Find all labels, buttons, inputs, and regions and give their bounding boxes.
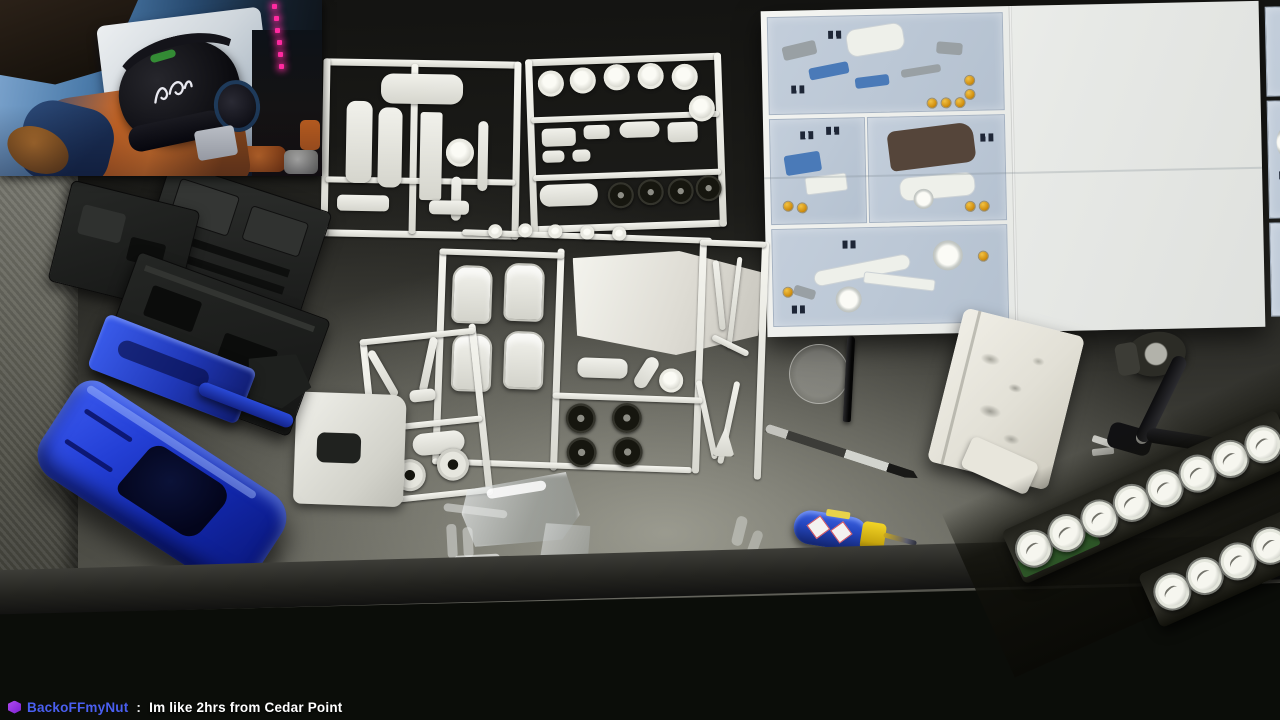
instruction-page-left xyxy=(761,6,1017,337)
tire-part xyxy=(565,403,596,434)
front-fascia-part xyxy=(293,391,407,507)
instruction-panel xyxy=(1269,218,1280,317)
stream-frame: BackoFFmyNut : Im like 2hrs from Cedar P… xyxy=(0,0,1280,720)
chat-username: BackoFFmyNut xyxy=(27,700,128,715)
instruction-panel xyxy=(769,117,867,225)
car-cockpit-opening xyxy=(113,441,234,541)
instruction-panel xyxy=(1265,2,1280,97)
steering-wheel-part xyxy=(446,138,474,166)
car-body-group xyxy=(28,398,308,588)
instruction-sheet xyxy=(761,1,1266,337)
engine-half-part xyxy=(377,107,402,187)
instruction-panel xyxy=(1267,98,1280,218)
chat-message-text: Im like 2hrs from Cedar Point xyxy=(149,700,342,715)
webcam-feed xyxy=(0,0,322,176)
chat-badge-icon xyxy=(8,701,21,714)
chat-message-row: BackoFFmyNut : Im like 2hrs from Cedar P… xyxy=(0,694,528,720)
seat-part xyxy=(503,331,545,390)
engine-half-part xyxy=(345,101,372,183)
air-cleaner-part xyxy=(381,73,464,104)
muffler-part xyxy=(577,357,628,379)
chat-separator: : xyxy=(136,700,141,715)
small-triangle-part xyxy=(713,426,736,457)
tool-stand-base xyxy=(789,344,849,404)
instruction-panel xyxy=(767,12,1005,115)
tire-part xyxy=(607,182,634,209)
seat-part xyxy=(503,263,545,322)
sprue-engine-parts xyxy=(320,58,521,239)
door-panel-part xyxy=(419,112,443,200)
cam-vignette xyxy=(0,0,322,176)
sprue-wheels xyxy=(525,51,727,236)
tub-part xyxy=(539,183,598,207)
seat-part xyxy=(451,265,493,324)
instruction-page-right xyxy=(1259,0,1280,327)
instruction-panel xyxy=(867,114,1007,223)
